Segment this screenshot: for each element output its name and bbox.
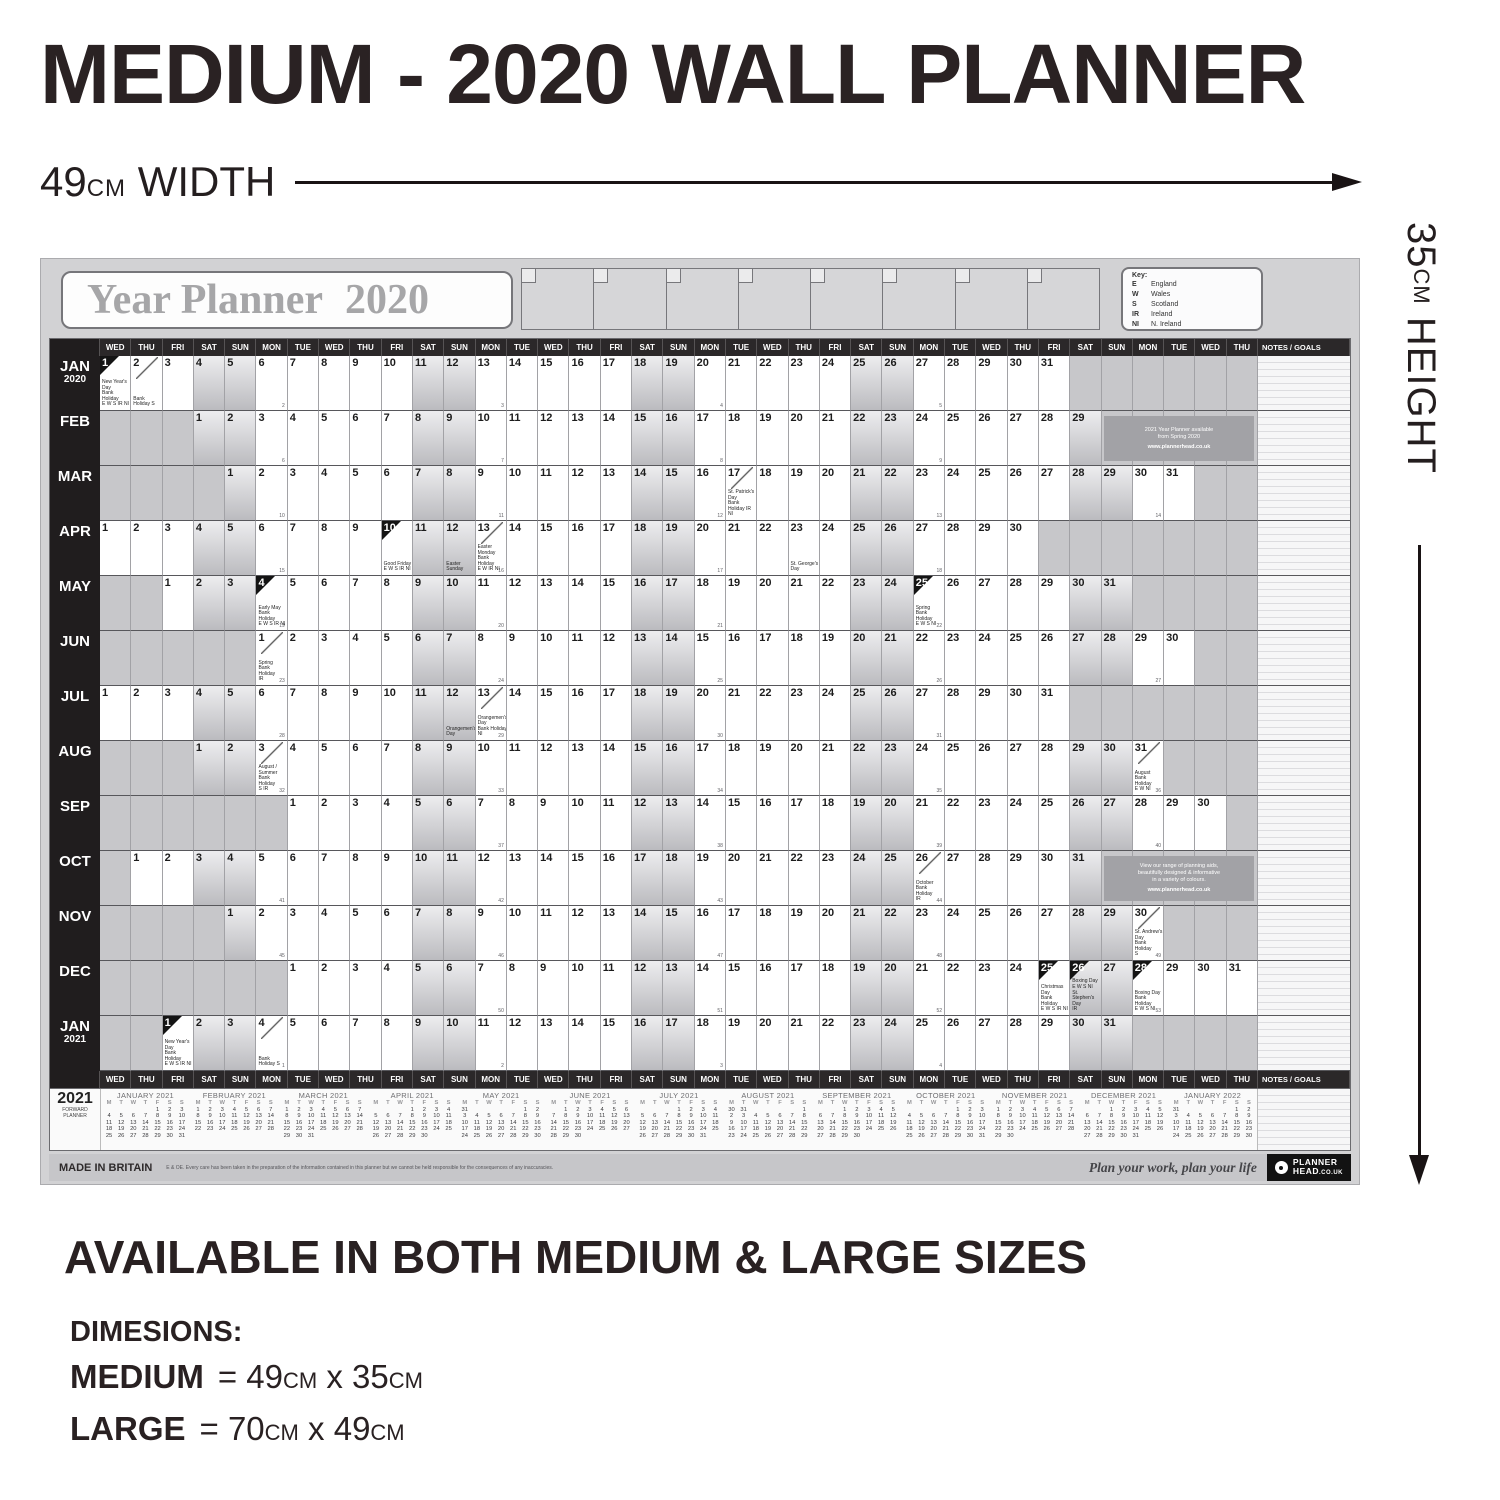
day-cell: 13 <box>601 466 632 521</box>
day-cell: 1647 <box>695 906 726 961</box>
mini-day: 6 <box>814 1113 826 1120</box>
day-number: 20 <box>822 907 834 919</box>
day-cell: AugustBank HolidayE W NI3136 <box>1133 741 1164 796</box>
day-cell: 28 <box>945 686 976 741</box>
mini-day: 19 <box>608 1120 620 1127</box>
day-number: 22 <box>853 412 865 424</box>
day-number: 12 <box>446 357 458 369</box>
mini-day: 1 <box>281 1107 293 1114</box>
day-cell: 6 <box>413 631 444 686</box>
day-number: 17 <box>603 357 615 369</box>
day-cell: 27 <box>1039 906 1070 961</box>
day-number: 25 <box>853 357 865 369</box>
mini-day <box>1053 1133 1065 1140</box>
day-number: 4 <box>258 577 264 589</box>
day-cell: 2 <box>194 1016 225 1071</box>
day-cell: 18 <box>632 686 663 741</box>
day-cell: 9 <box>444 411 475 466</box>
mini-day: 3 <box>216 1107 228 1114</box>
holiday-note: St. George's Day <box>791 562 819 573</box>
day-cell: 6 <box>288 851 319 906</box>
mini-day: 13 <box>1053 1113 1065 1120</box>
day-cell: 18 <box>820 796 851 851</box>
day-cell: 25 <box>945 741 976 796</box>
week-number: 48 <box>936 953 942 959</box>
mini-day: 3 <box>584 1107 596 1114</box>
day-cell: 9 <box>382 851 413 906</box>
notes-cell <box>1258 631 1350 686</box>
day-number: 8 <box>446 467 452 479</box>
day-cell: 16 <box>601 851 632 906</box>
day-header: MON <box>1133 1071 1164 1088</box>
mini-day: 28 <box>139 1133 151 1140</box>
day-number: 8 <box>321 357 327 369</box>
mini-day: 15 <box>560 1120 572 1127</box>
mini-day: 12 <box>637 1120 649 1127</box>
day-cell: 27 <box>1102 961 1133 1016</box>
mini-month: AUGUST 2021MTWTFSS3031123456789101112131… <box>723 1089 812 1150</box>
day-cell: 8 <box>507 961 538 1016</box>
day-number: 24 <box>884 577 896 589</box>
day-cell: 21 <box>789 1016 820 1071</box>
day-number: 7 <box>446 632 452 644</box>
hanging-tab <box>521 268 594 330</box>
day-number: 28 <box>1104 632 1116 644</box>
week-number: 19 <box>279 623 285 629</box>
day-cell: 13 <box>507 851 538 906</box>
week-number: 34 <box>717 788 723 794</box>
empty-cell <box>194 906 225 961</box>
mini-day: 7 <box>1093 1113 1105 1120</box>
mini-day: 15 <box>798 1120 810 1127</box>
week-number: 51 <box>717 1008 723 1014</box>
day-header: FRI <box>1039 339 1070 356</box>
day-cell: 15 <box>663 906 694 961</box>
mini-day: 23 <box>531 1126 543 1133</box>
day-number: 12 <box>509 577 521 589</box>
day-number: 15 <box>540 687 552 699</box>
mini-day: 25 <box>709 1126 721 1133</box>
day-cell: 911 <box>476 466 507 521</box>
mini-day: 12 <box>483 1120 495 1127</box>
day-cell: 24 <box>882 576 913 631</box>
day-cell: 11 <box>413 686 444 741</box>
mini-day: 20 <box>1081 1126 1093 1133</box>
week-number: 44 <box>936 898 942 904</box>
day-number: 13 <box>603 907 615 919</box>
day-number: 21 <box>853 467 865 479</box>
mini-day: 23 <box>1243 1126 1255 1133</box>
mini-day: 5 <box>240 1107 252 1114</box>
mini-day: 14 <box>1065 1113 1077 1120</box>
mini-day: 4 <box>750 1113 762 1120</box>
empty-cell <box>1133 356 1164 411</box>
day-number: 11 <box>415 522 427 534</box>
day-number: 11 <box>540 467 552 479</box>
mini-day: 16 <box>572 1120 584 1127</box>
day-number: 15 <box>540 522 552 534</box>
day-number: 9 <box>509 632 515 644</box>
day-number: 22 <box>822 577 834 589</box>
day-number: 14 <box>603 742 615 754</box>
mini-day: 19 <box>915 1126 927 1133</box>
disclaimer: E & OE. Every care has been taken in the… <box>166 1165 1089 1171</box>
mini-day: 17 <box>738 1126 750 1133</box>
day-cell: 29 <box>1070 741 1101 796</box>
day-cell: 4 <box>319 466 350 521</box>
day-number: 19 <box>697 852 709 864</box>
mini-day: 13 <box>774 1120 786 1127</box>
mini-day: 27 <box>382 1133 394 1140</box>
mini-day: 17 <box>430 1120 442 1127</box>
day-number: 10 <box>571 797 583 809</box>
mini-day: 29 <box>560 1133 572 1140</box>
mini-day: 21 <box>548 1126 560 1133</box>
day-header: FRI <box>820 1071 851 1088</box>
week-number: 32 <box>279 788 285 794</box>
day-cell: 1821 <box>695 576 726 631</box>
day-number: 8 <box>446 907 452 919</box>
mini-day: 30 <box>964 1133 976 1140</box>
mini-day <box>394 1107 406 1114</box>
mini-day: 13 <box>814 1120 826 1127</box>
day-number: 23 <box>978 797 990 809</box>
day-number: 29 <box>1072 742 1084 754</box>
mini-day: 30 <box>531 1133 543 1140</box>
month-label: JAN2020 <box>50 356 100 411</box>
day-number: 27 <box>1104 962 1116 974</box>
week-number: 36 <box>1156 788 1162 794</box>
day-number: 4 <box>196 687 202 699</box>
tab-fold-mark <box>738 268 753 283</box>
day-cell: Early MayBank HolidayE W S IR NI419 <box>256 576 287 631</box>
empty-cell <box>1227 741 1258 796</box>
tab-fold-mark <box>1027 268 1042 283</box>
day-number: 16 <box>634 1017 646 1029</box>
day-cell: 1943 <box>695 851 726 906</box>
day-header: SAT <box>1070 339 1101 356</box>
day-header: MON <box>695 1071 726 1088</box>
day-cell: 30 <box>1008 356 1039 411</box>
mini-day: 28 <box>1065 1126 1077 1133</box>
width-dimension: 49CM WIDTH <box>40 156 1362 208</box>
day-number: 6 <box>415 632 421 644</box>
week-number: 28 <box>279 733 285 739</box>
day-number: 21 <box>884 632 896 644</box>
day-cell: 4 <box>382 961 413 1016</box>
promo-box: 2021 Year Planner availablefrom Spring 2… <box>1104 416 1254 461</box>
day-cell: 28 <box>1102 631 1133 686</box>
day-cell: 26 <box>1008 466 1039 521</box>
mini-day: 31 <box>176 1133 188 1140</box>
day-cell: 245 <box>256 906 287 961</box>
mini-day: 21 <box>940 1126 952 1133</box>
week-number: 7 <box>501 458 504 464</box>
day-header: SAT <box>194 339 225 356</box>
day-cell: 28 <box>1070 906 1101 961</box>
day-number: 14 <box>571 1017 583 1029</box>
day-number: 15 <box>697 632 709 644</box>
day-number: 4 <box>196 522 202 534</box>
day-header: WED <box>538 339 569 356</box>
day-number: 26 <box>978 742 990 754</box>
day-number: 18 <box>634 522 646 534</box>
mini-day: 17 <box>459 1126 471 1133</box>
day-cell: 62 <box>256 356 287 411</box>
day-cell: 2927 <box>1133 631 1164 686</box>
mini-day: 19 <box>637 1126 649 1133</box>
mini-month-name: DECEMBER 2021 <box>1081 1091 1166 1100</box>
day-cell: Orangemen's Day12 <box>444 686 475 741</box>
mini-day: 8 <box>192 1113 204 1120</box>
day-cell: 5 <box>319 411 350 466</box>
day-cell: 7 <box>413 466 444 521</box>
day-number: 13 <box>478 357 490 369</box>
mini-day: 27 <box>495 1133 507 1140</box>
key-entry: SScotland <box>1132 300 1252 310</box>
day-number: 10 <box>509 467 521 479</box>
day-number: 5 <box>415 797 421 809</box>
day-header: SUN <box>1102 339 1133 356</box>
mini-day: 7 <box>1219 1113 1231 1120</box>
day-number: 13 <box>509 852 521 864</box>
mini-day <box>1194 1107 1206 1114</box>
day-cell: 27 <box>945 851 976 906</box>
mini-day: 2 <box>1004 1107 1016 1114</box>
day-cell: 3 <box>194 851 225 906</box>
mini-day: 28 <box>507 1133 519 1140</box>
empty-cell <box>1227 466 1258 521</box>
day-number: 1 <box>227 907 233 919</box>
mini-day: 6 <box>774 1113 786 1120</box>
mini-day: 30 <box>164 1133 176 1140</box>
mini-day: 29 <box>1105 1133 1117 1140</box>
day-number: 21 <box>728 687 740 699</box>
day-number: 27 <box>916 687 928 699</box>
mini-day: 25 <box>103 1133 115 1140</box>
mini-day: 4 <box>903 1113 915 1120</box>
week-number: 18 <box>936 568 942 574</box>
mini-day: 25 <box>317 1126 329 1133</box>
day-cell: 23 <box>789 356 820 411</box>
hanging-tab <box>738 268 811 330</box>
day-number: 23 <box>853 577 865 589</box>
empty-cell <box>1164 576 1195 631</box>
mini-month: FEBRUARY 2021MTWTFSS12345678910111213141… <box>190 1089 279 1150</box>
day-number: 28 <box>947 522 959 534</box>
week-number: 4 <box>720 403 723 409</box>
dimension-rows: MEDIUM= 49cm x 35cmLARGE= 70cm x 49cm <box>70 1358 423 1462</box>
month-label: JAN2021 <box>50 1016 100 1071</box>
day-number: 16 <box>759 962 771 974</box>
mini-day: 19 <box>1041 1120 1053 1127</box>
day-cell: 2840 <box>1133 796 1164 851</box>
day-number: 1 <box>290 797 296 809</box>
mini-day: 20 <box>382 1126 394 1133</box>
empty-cell <box>1195 906 1226 961</box>
mini-day: 12 <box>1154 1113 1166 1120</box>
day-cell: 30 <box>1195 796 1226 851</box>
day-header: FRI <box>382 339 413 356</box>
mini-day: 17 <box>697 1120 709 1127</box>
day-number: 28 <box>1072 467 1084 479</box>
mini-day: 17 <box>216 1120 228 1127</box>
day-number: 17 <box>603 522 615 534</box>
mini-day: 23 <box>418 1126 430 1133</box>
empty-cell <box>1164 906 1195 961</box>
day-number: 9 <box>352 687 358 699</box>
day-cell: Good FridayE W S IR NI10 <box>382 521 413 576</box>
day-number: 28 <box>1010 1017 1022 1029</box>
mini-day: 11 <box>750 1120 762 1127</box>
day-cell: 31 <box>1039 356 1070 411</box>
mini-day: 16 <box>531 1120 543 1127</box>
mini-day: 26 <box>1154 1126 1166 1133</box>
mini-day: 24 <box>863 1126 875 1133</box>
mini-day: 26 <box>240 1126 252 1133</box>
day-cell: 11 <box>507 741 538 796</box>
mini-day: 10 <box>584 1113 596 1120</box>
day-cell: 17 <box>663 1016 694 1071</box>
week-number: 26 <box>936 678 942 684</box>
day-number: 31 <box>1104 577 1116 589</box>
day-number: 1 <box>133 852 139 864</box>
mini-day: 30 <box>1004 1133 1016 1140</box>
empty-cell <box>1227 356 1258 411</box>
day-number: 13 <box>603 467 615 479</box>
week-number: 49 <box>1156 953 1162 959</box>
day-cell: 31 <box>1039 686 1070 741</box>
day-cell: 26 <box>882 356 913 411</box>
mini-day: 5 <box>1194 1113 1206 1120</box>
day-header: SUN <box>225 339 256 356</box>
mini-day: 30 <box>1118 1133 1130 1140</box>
day-number: 10 <box>446 1017 458 1029</box>
mini-day: 26 <box>1041 1126 1053 1133</box>
mini-day <box>1093 1107 1105 1114</box>
day-number: 6 <box>352 412 358 424</box>
day-cell: 27 <box>976 1016 1007 1071</box>
mini-day: 28 <box>827 1133 839 1140</box>
mini-day: 4 <box>709 1107 721 1114</box>
day-number: 1 <box>102 522 108 534</box>
day-number: 27 <box>916 357 928 369</box>
day-number: 25 <box>1041 797 1053 809</box>
day-number: 28 <box>947 687 959 699</box>
mini-day: 5 <box>762 1113 774 1120</box>
day-number: 25 <box>916 1017 928 1029</box>
day-number: 1 <box>227 467 233 479</box>
empty-cell <box>194 796 225 851</box>
day-cell: 21 <box>820 741 851 796</box>
mini-day: 27 <box>620 1126 632 1133</box>
mini-day: 26 <box>329 1126 341 1133</box>
day-header: WED <box>1195 1071 1226 1088</box>
empty-cell <box>131 961 162 1016</box>
day-number: 19 <box>728 577 740 589</box>
mini-day: 21 <box>265 1120 277 1127</box>
day-cell: 18 <box>820 961 851 1016</box>
mini-day: 23 <box>851 1126 863 1133</box>
mini-day <box>370 1107 382 1114</box>
mini-day: 12 <box>1194 1120 1206 1127</box>
day-number: 23 <box>791 522 803 534</box>
day-cell: 112 <box>476 1016 507 1071</box>
day-cell: 18 <box>726 741 757 796</box>
day-header: MON <box>256 1071 287 1088</box>
day-number: 26 <box>1010 907 1022 919</box>
day-cell: 5 <box>225 356 256 411</box>
day-cell: 15 <box>601 1016 632 1071</box>
day-cell: 27 <box>1008 411 1039 466</box>
day-cell: 11 <box>601 961 632 1016</box>
day-cell: 14 <box>601 411 632 466</box>
day-number: 10 <box>571 962 583 974</box>
mini-day: 22 <box>798 1126 810 1133</box>
mini-day: 22 <box>519 1126 531 1133</box>
day-number: 16 <box>728 632 740 644</box>
day-number: 23 <box>947 632 959 644</box>
day-header: SAT <box>194 1071 225 1088</box>
mini-day: 8 <box>519 1113 531 1120</box>
mini-day: 5 <box>915 1113 927 1120</box>
mini-day: 16 <box>164 1120 176 1127</box>
day-cell: 30 <box>1039 851 1070 906</box>
mini-day: 3 <box>1016 1107 1028 1114</box>
day-number: 21 <box>916 962 928 974</box>
day-cell: 5 <box>382 631 413 686</box>
day-cell: 13 <box>569 411 600 466</box>
mini-day: 12 <box>762 1120 774 1127</box>
day-cell: 2 <box>225 741 256 796</box>
day-cell: 541 <box>256 851 287 906</box>
day-number: 1 <box>165 1017 171 1029</box>
holiday-note: St. Patrick's DayBank Holiday IR NI <box>728 490 756 518</box>
day-number: 6 <box>258 522 264 534</box>
mini-day: 1 <box>1105 1107 1117 1114</box>
mini-day: 11 <box>443 1113 455 1120</box>
mini-day: 1 <box>673 1107 685 1114</box>
day-number: 16 <box>571 522 583 534</box>
mini-day: 20 <box>495 1126 507 1133</box>
day-cell: 19 <box>726 576 757 631</box>
day-cell: 10 <box>382 356 413 411</box>
day-cell: 26 <box>976 741 1007 796</box>
mini-day: 10 <box>459 1120 471 1127</box>
mini-day: 20 <box>649 1126 661 1133</box>
mini-day <box>928 1107 940 1114</box>
day-cell: 107 <box>476 411 507 466</box>
day-number: 6 <box>258 687 264 699</box>
day-number: 2 <box>196 1017 202 1029</box>
mini-day: 12 <box>240 1113 252 1120</box>
day-cell: 12 <box>538 741 569 796</box>
mini-day: 27 <box>814 1133 826 1140</box>
day-cell: 19 <box>789 906 820 961</box>
day-cell: 16 <box>663 741 694 796</box>
notes-cell <box>1258 906 1350 961</box>
mini-day: 1 <box>152 1107 164 1114</box>
mini-day: 8 <box>673 1113 685 1120</box>
mini-day: 3 <box>1130 1107 1142 1114</box>
mini-day: 5 <box>1041 1107 1053 1114</box>
planner-grid: WEDTHUFRISATSUNMONTUEWEDTHUFRISATSUNMONT… <box>49 338 1351 1089</box>
mini-day: 7 <box>827 1113 839 1120</box>
day-number: 9 <box>415 577 421 589</box>
day-number: 22 <box>822 1017 834 1029</box>
mini-day: 24 <box>459 1133 471 1140</box>
day-number: 17 <box>791 797 803 809</box>
